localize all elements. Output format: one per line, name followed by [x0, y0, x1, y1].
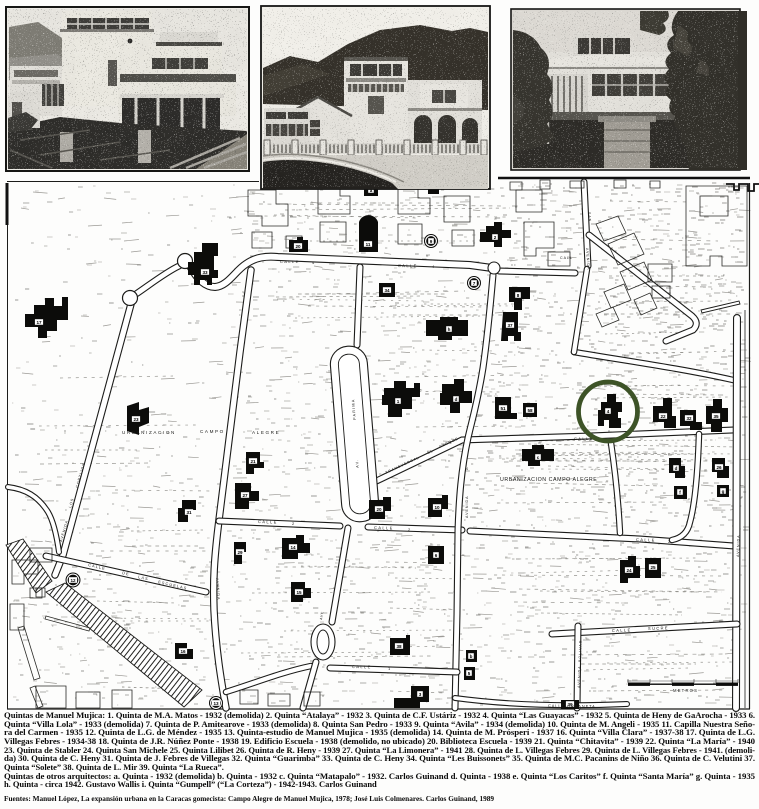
svg-text:11: 11 — [366, 242, 371, 247]
svg-text:1: 1 — [397, 399, 400, 404]
svg-text:CALLE: CALLE — [258, 519, 278, 525]
svg-text:35: 35 — [713, 414, 719, 419]
svg-text:METROS: METROS — [673, 688, 698, 693]
svg-text:27: 27 — [242, 493, 248, 498]
svg-text:33: 33 — [202, 270, 208, 275]
svg-text:58: 58 — [527, 408, 533, 413]
svg-text:32: 32 — [686, 416, 692, 421]
svg-text:10: 10 — [434, 505, 440, 510]
svg-text:31: 31 — [186, 510, 192, 515]
svg-text:4: 4 — [466, 467, 468, 471]
svg-text:9: 9 — [430, 239, 433, 244]
svg-text:CAMPO: CAMPO — [200, 429, 225, 434]
svg-text:CALLE URDANETA: CALLE URDANETA — [548, 704, 596, 709]
svg-text:12: 12 — [70, 578, 76, 583]
svg-text:CALLE: CALLE — [398, 263, 418, 268]
svg-text:17: 17 — [36, 320, 42, 325]
svg-text:ALEGRE: ALEGRE — [252, 430, 280, 435]
svg-text:29: 29 — [237, 550, 243, 555]
svg-text:h: h — [448, 327, 451, 332]
svg-text:SAN: SAN — [587, 212, 592, 223]
svg-text:15: 15 — [296, 590, 302, 595]
svg-text:AVENIDA: AVENIDA — [736, 534, 741, 557]
svg-text:51: 51 — [500, 406, 506, 411]
svg-text:23: 23 — [133, 417, 139, 422]
svg-text:3: 3 — [419, 692, 422, 697]
svg-text:CALLE: CALLE — [352, 664, 372, 669]
svg-text:5: 5 — [468, 671, 471, 676]
svg-text:c: c — [537, 455, 540, 460]
svg-text:CALLE: CALLE — [636, 537, 656, 543]
svg-text:16: 16 — [180, 649, 186, 654]
svg-text:CALL: CALL — [560, 256, 573, 260]
svg-text:7: 7 — [473, 281, 476, 286]
svg-text:CALLE: CALLE — [612, 627, 632, 633]
svg-text:AV.: AV. — [355, 459, 360, 468]
svg-text:CALLE: CALLE — [374, 525, 394, 531]
svg-text:21: 21 — [250, 459, 256, 464]
svg-text:BOLIVAR: BOLIVAR — [578, 640, 583, 662]
svg-text:38: 38 — [396, 644, 402, 649]
svg-text:6: 6 — [435, 553, 438, 558]
svg-text:25: 25 — [650, 565, 656, 570]
svg-text:22: 22 — [660, 414, 666, 419]
svg-text:2: 2 — [494, 235, 497, 240]
svg-text:34: 34 — [384, 288, 390, 293]
svg-text:SUCRE: SUCRE — [648, 625, 669, 631]
svg-text:AVENIDA: AVENIDA — [465, 495, 469, 518]
svg-text:24: 24 — [626, 568, 632, 573]
svg-text:URBANIZACION CAMPO ALEGRE’: URBANIZACION CAMPO ALEGRE’ — [500, 477, 599, 483]
svg-text:26: 26 — [716, 465, 722, 470]
svg-text:d: d — [455, 397, 458, 402]
svg-text:AVENIDA: AVENIDA — [577, 665, 582, 688]
svg-text:g: g — [722, 489, 725, 494]
svg-text:b: b — [470, 654, 473, 659]
svg-text:13: 13 — [213, 701, 219, 706]
svg-text:4: 4 — [607, 409, 610, 414]
svg-text:14: 14 — [290, 545, 296, 550]
svg-text:20: 20 — [376, 507, 382, 512]
svg-text:37: 37 — [507, 323, 513, 328]
svg-text:8: 8 — [517, 293, 520, 298]
svg-text:CALLE: CALLE — [280, 259, 300, 264]
svg-text:20: 20 — [295, 244, 301, 249]
svg-text:URBANIZACION: URBANIZACION — [122, 430, 176, 435]
svg-text:d: d — [675, 466, 678, 471]
